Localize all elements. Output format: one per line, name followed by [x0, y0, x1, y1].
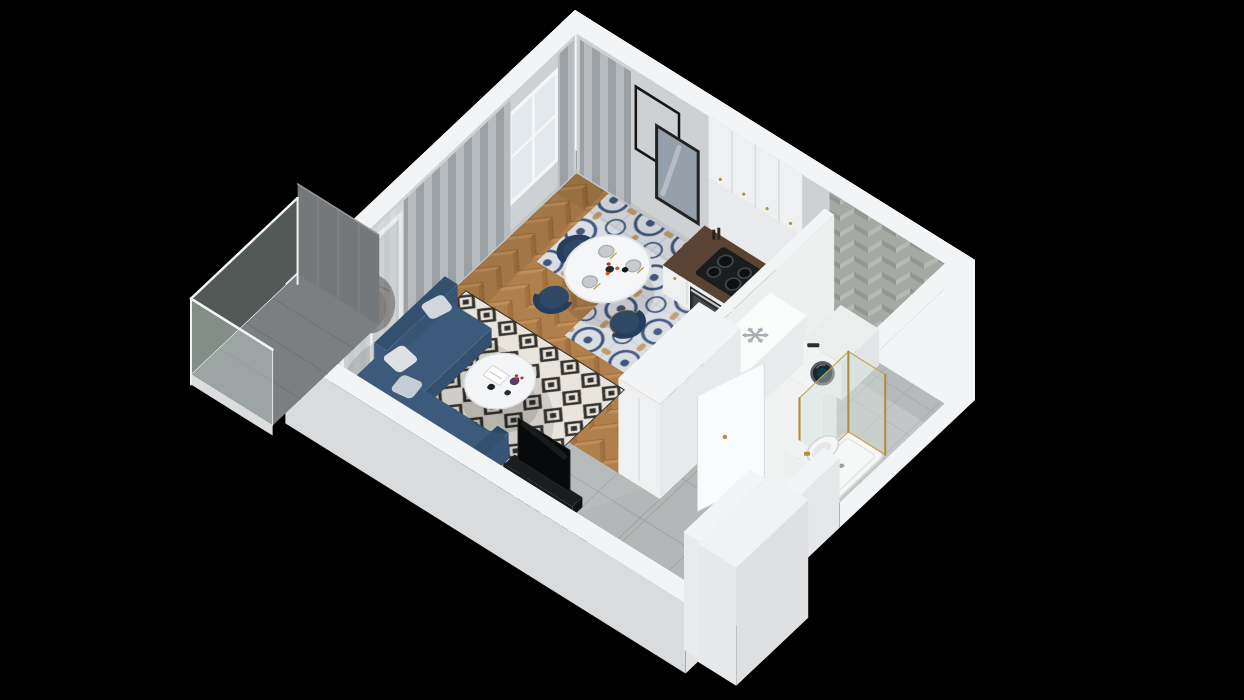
apartment-3d-floor-plan [0, 0, 1244, 700]
flush-plate [804, 452, 810, 456]
floor-plan-stage [0, 0, 1244, 700]
